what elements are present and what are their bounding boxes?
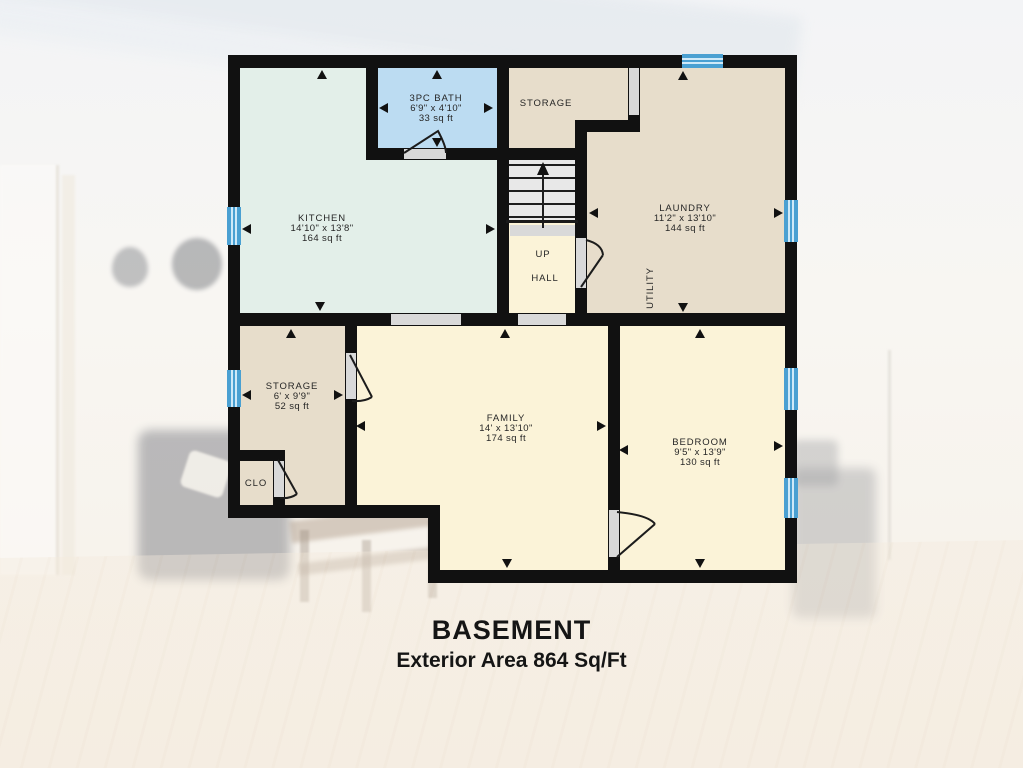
bedroom-area: 130 sq ft: [680, 457, 720, 468]
bedroom-window2-icon: [784, 478, 798, 518]
family-area: 174 sq ft: [486, 433, 526, 444]
page-title: BASEMENT: [0, 615, 1023, 646]
laundry-top-window-icon: [682, 54, 723, 68]
bath-door-opening: [404, 149, 446, 159]
storage-laundry-opening: [629, 68, 639, 115]
family-room: [348, 318, 614, 508]
kitchen-family-opening: [391, 314, 461, 325]
plan-title-block: BASEMENT Exterior Area 864 Sq/Ft: [0, 615, 1023, 673]
kitchen-area: 164 sq ft: [302, 233, 342, 244]
storage-top-label: STORAGE: [520, 98, 573, 109]
bath-area: 33 sq ft: [419, 113, 453, 124]
hall-room: [506, 222, 578, 320]
family-room-lower: [438, 500, 614, 572]
bedroom-door-opening: [609, 510, 619, 557]
closet-label: CLO: [245, 478, 267, 489]
storage-left-area: 52 sq ft: [275, 401, 309, 412]
bedroom-window1-icon: [784, 368, 798, 410]
laundry-area: 144 sq ft: [665, 223, 705, 234]
up-label: UP: [536, 249, 551, 260]
hall-family-opening: [518, 314, 566, 325]
kitchen-window-icon: [227, 207, 241, 245]
storage-window-icon: [227, 370, 241, 407]
storage-family-opening: [346, 353, 356, 399]
utility-label: UTILITY: [645, 267, 656, 309]
laundry-right-window-icon: [784, 200, 798, 242]
floorplan-page: KITCHEN 14'10" x 13'8" 164 sq ft 3PC BAT…: [0, 0, 1023, 768]
page-subtitle: Exterior Area 864 Sq/Ft: [0, 649, 1023, 673]
hall-label: HALL: [531, 273, 558, 284]
